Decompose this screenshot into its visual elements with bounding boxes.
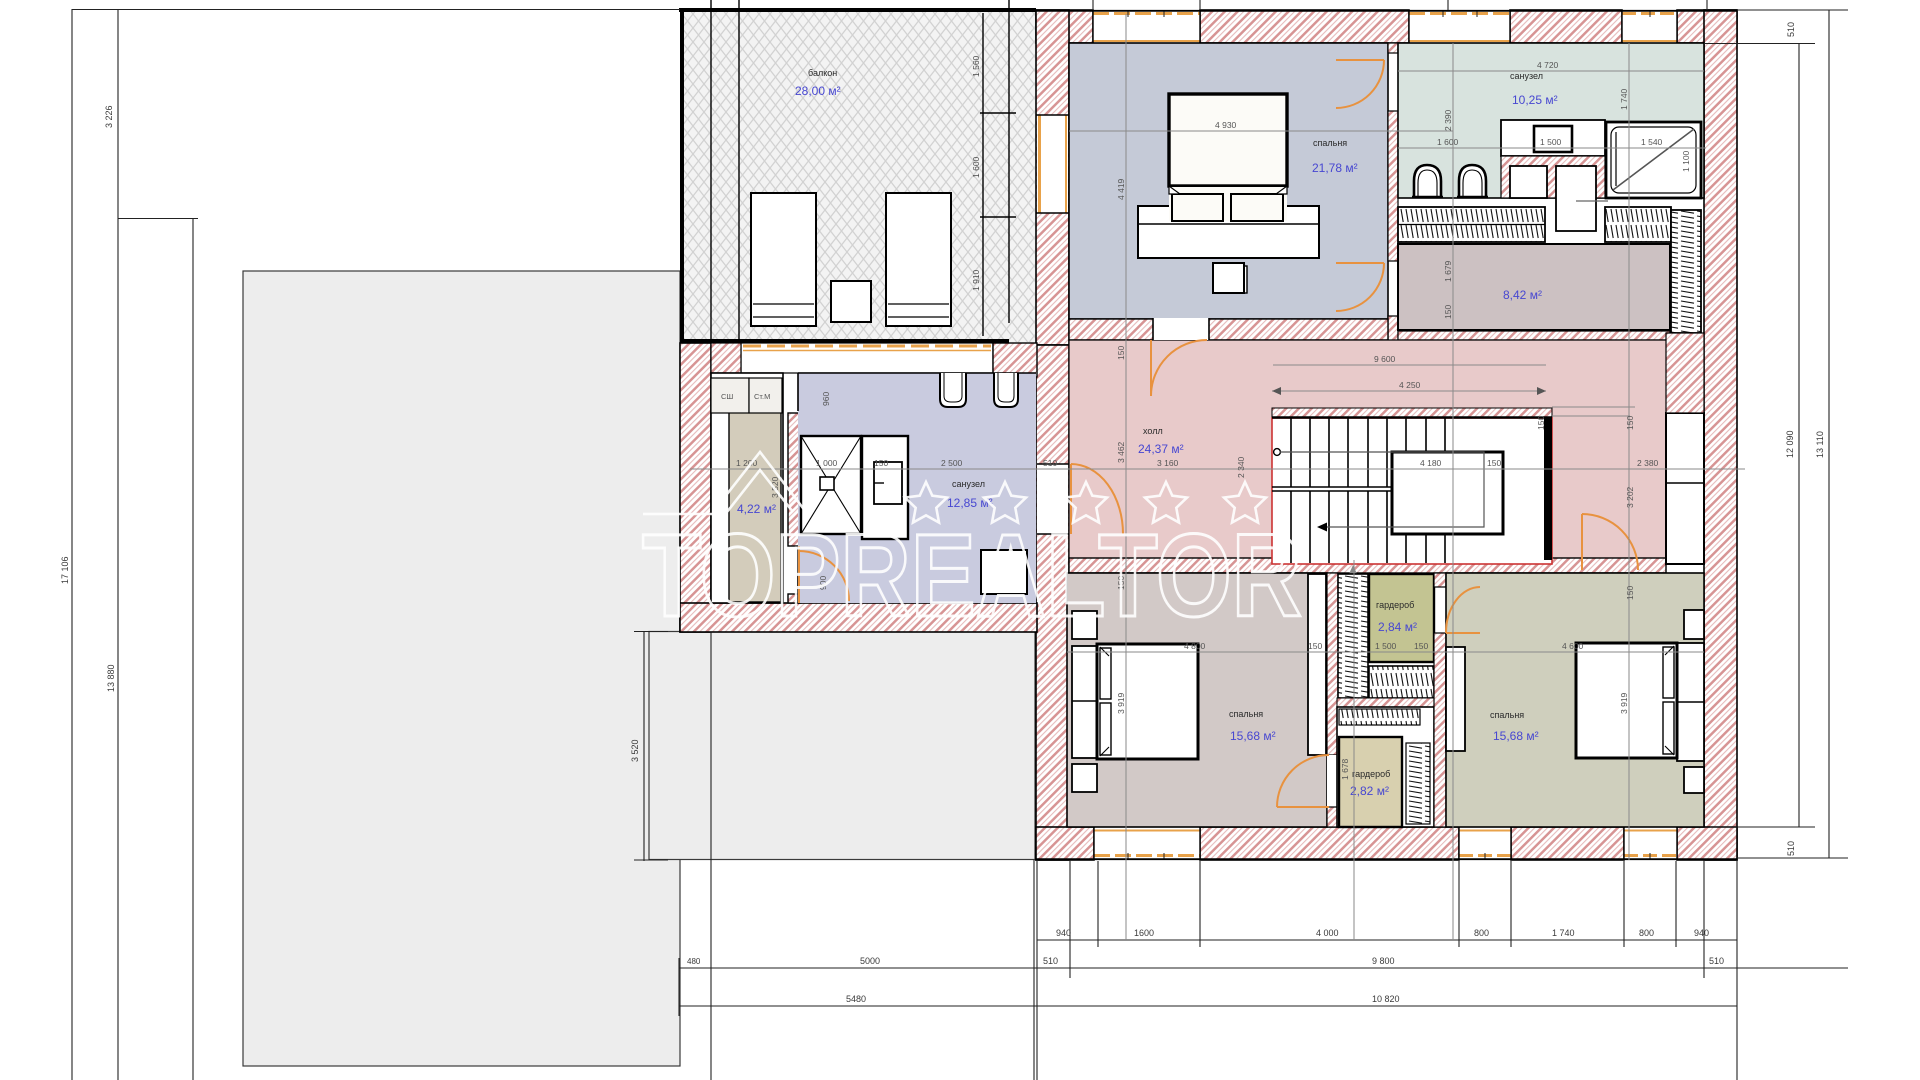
svg-text:холл: холл <box>1143 426 1163 436</box>
svg-text:960: 960 <box>821 392 831 406</box>
svg-text:15,68 м²: 15,68 м² <box>1493 729 1539 743</box>
svg-text:3 520: 3 520 <box>630 739 640 762</box>
svg-text:13 110: 13 110 <box>1815 431 1825 458</box>
svg-text:4 180: 4 180 <box>1420 458 1442 468</box>
svg-text:940: 940 <box>1694 928 1709 938</box>
svg-text:1 500: 1 500 <box>1540 137 1562 147</box>
svg-text:150: 150 <box>1536 416 1546 430</box>
svg-text:28,00 м²: 28,00 м² <box>795 84 841 98</box>
svg-text:480: 480 <box>687 957 701 966</box>
svg-text:4 000: 4 000 <box>1316 928 1339 938</box>
svg-text:3 919: 3 919 <box>1116 692 1126 714</box>
svg-text:1 740: 1 740 <box>1619 88 1629 110</box>
svg-text:24,37 м²: 24,37 м² <box>1138 442 1184 456</box>
svg-text:2,82 м²: 2,82 м² <box>1350 784 1389 798</box>
svg-text:спальня: спальня <box>1313 138 1347 148</box>
svg-text:150: 150 <box>1625 586 1635 600</box>
svg-text:4 800: 4 800 <box>1184 641 1206 651</box>
svg-text:150: 150 <box>1443 305 1453 319</box>
svg-text:Ст.М: Ст.М <box>754 392 770 401</box>
svg-text:1 100: 1 100 <box>1681 150 1691 172</box>
svg-text:940: 940 <box>1056 928 1071 938</box>
svg-text:510: 510 <box>1709 956 1724 966</box>
svg-text:2 380: 2 380 <box>1637 458 1659 468</box>
svg-text:13 880: 13 880 <box>106 664 116 692</box>
svg-text:12 090: 12 090 <box>1785 430 1795 458</box>
svg-text:гардероб: гардероб <box>1376 600 1414 610</box>
svg-text:3 160: 3 160 <box>1157 458 1179 468</box>
svg-text:1 678: 1 678 <box>1340 758 1350 780</box>
svg-text:2 390: 2 390 <box>1443 109 1453 131</box>
svg-text:510: 510 <box>1786 22 1796 37</box>
svg-text:1 910: 1 910 <box>971 269 981 291</box>
svg-text:150: 150 <box>1308 641 1322 651</box>
svg-text:9 600: 9 600 <box>1374 354 1396 364</box>
svg-text:СШ: СШ <box>721 392 733 401</box>
svg-text:5480: 5480 <box>846 994 866 1004</box>
svg-text:спальня: спальня <box>1490 710 1524 720</box>
svg-text:150: 150 <box>1625 416 1635 430</box>
svg-text:4 720: 4 720 <box>1537 60 1559 70</box>
svg-text:9 800: 9 800 <box>1372 956 1395 966</box>
svg-text:800: 800 <box>1639 928 1654 938</box>
svg-text:150: 150 <box>1116 346 1126 360</box>
svg-text:3 226: 3 226 <box>104 105 114 128</box>
svg-text:4 250: 4 250 <box>1399 380 1421 390</box>
svg-text:8,42 м²: 8,42 м² <box>1503 288 1542 302</box>
svg-text:1 560: 1 560 <box>971 55 981 77</box>
svg-text:150: 150 <box>874 458 888 468</box>
svg-text:4 419: 4 419 <box>1116 178 1126 200</box>
svg-text:балкон: балкон <box>808 68 837 78</box>
svg-text:10,25 м²: 10,25 м² <box>1512 93 1558 107</box>
svg-text:10 820: 10 820 <box>1372 994 1400 1004</box>
svg-text:510: 510 <box>1043 956 1058 966</box>
svg-text:21,78 м²: 21,78 м² <box>1312 161 1358 175</box>
svg-text:5000: 5000 <box>860 956 880 966</box>
svg-text:4 930: 4 930 <box>1215 120 1237 130</box>
svg-text:1 600: 1 600 <box>971 156 981 178</box>
svg-text:510: 510 <box>1786 841 1796 856</box>
svg-text:2,84 м²: 2,84 м² <box>1378 620 1417 634</box>
svg-text:150: 150 <box>1487 458 1501 468</box>
svg-text:1 540: 1 540 <box>1641 137 1663 147</box>
svg-text:800: 800 <box>1474 928 1489 938</box>
svg-text:санузел: санузел <box>1510 71 1543 81</box>
svg-text:15,68 м²: 15,68 м² <box>1230 729 1276 743</box>
svg-text:2 340: 2 340 <box>1236 456 1246 478</box>
svg-text:3 919: 3 919 <box>1619 692 1629 714</box>
svg-text:17 106: 17 106 <box>60 556 70 584</box>
svg-text:3 202: 3 202 <box>1625 486 1635 508</box>
svg-text:1 500: 1 500 <box>1375 641 1397 651</box>
svg-text:спальня: спальня <box>1229 709 1263 719</box>
svg-text:1 600: 1 600 <box>1437 137 1459 147</box>
svg-text:1 000: 1 000 <box>816 458 838 468</box>
svg-text:1 679: 1 679 <box>1443 260 1453 282</box>
svg-text:гардероб: гардероб <box>1352 769 1390 779</box>
svg-text:3 462: 3 462 <box>1116 441 1126 463</box>
svg-text:150: 150 <box>1414 641 1428 651</box>
svg-text:1 740: 1 740 <box>1552 928 1575 938</box>
svg-text:1600: 1600 <box>1134 928 1154 938</box>
svg-text:TOPREALTOR: TOPREALTOR <box>642 510 1302 642</box>
svg-text:4 600: 4 600 <box>1562 641 1584 651</box>
svg-text:2 500: 2 500 <box>941 458 963 468</box>
svg-text:санузел: санузел <box>952 479 985 489</box>
svg-text:510: 510 <box>1043 458 1057 468</box>
